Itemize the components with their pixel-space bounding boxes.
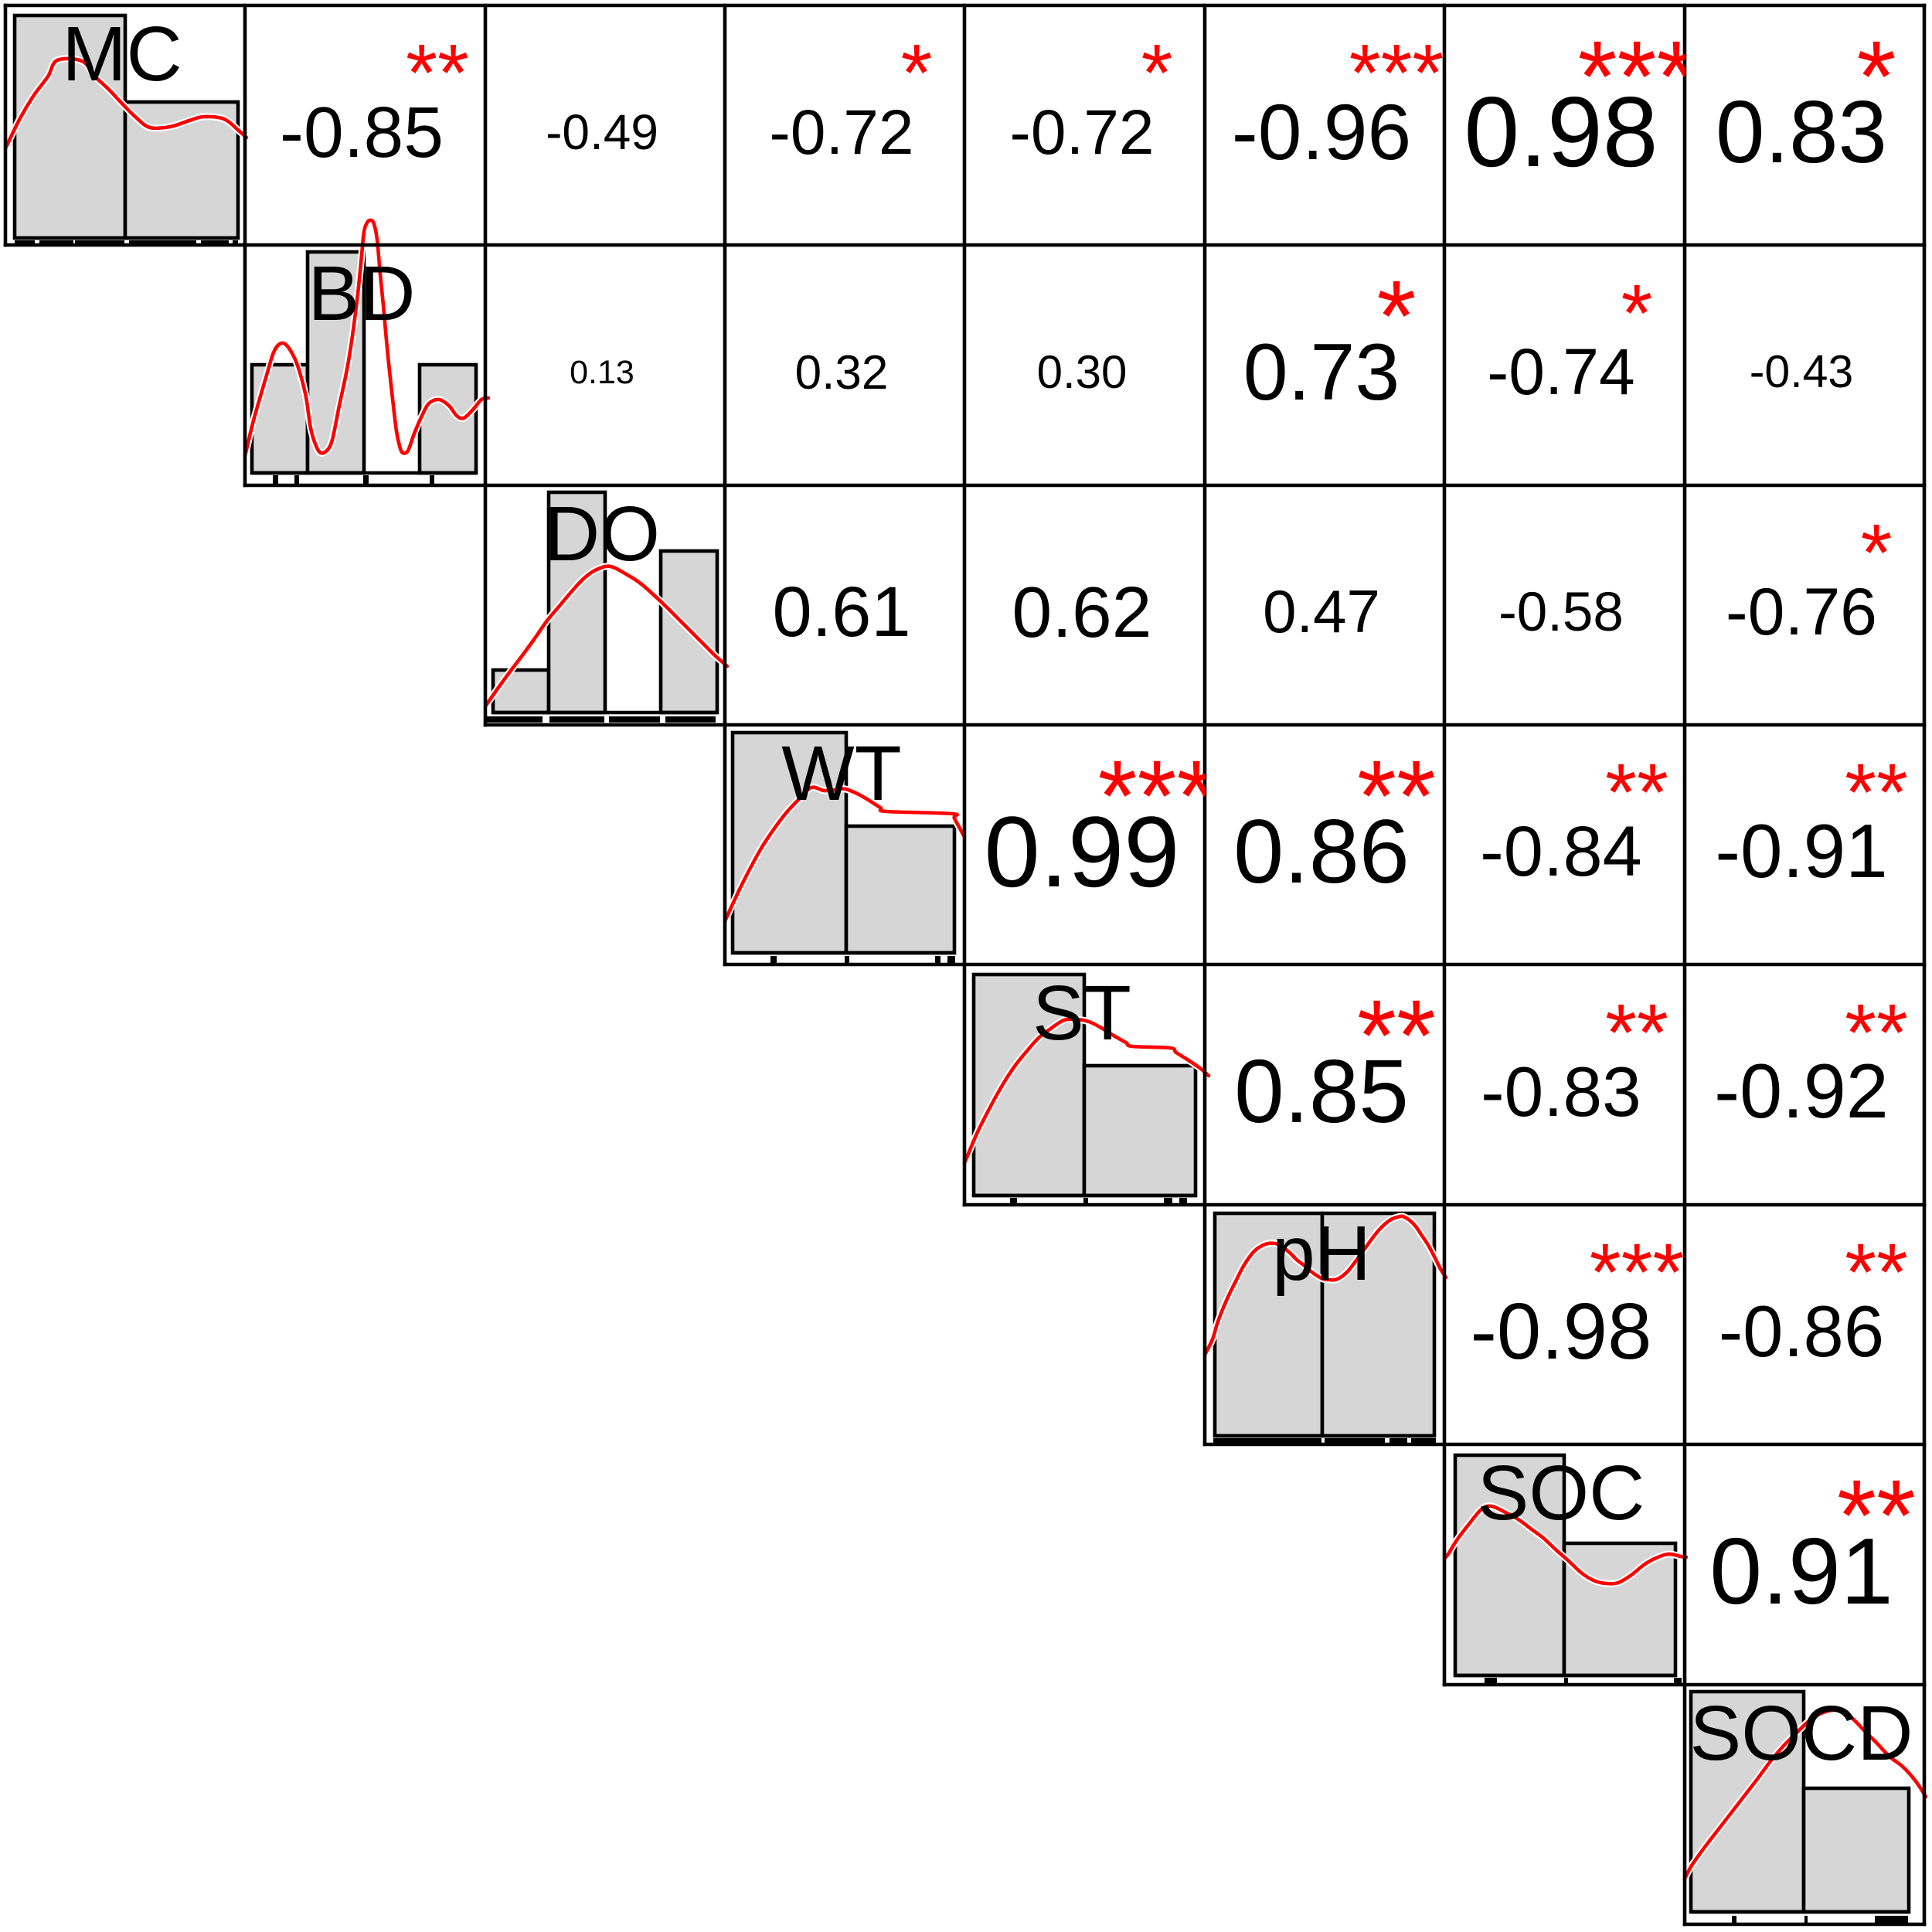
svg-text:**: **: [1605, 747, 1668, 838]
svg-text:0.13: 0.13: [570, 354, 634, 391]
svg-text:BD: BD: [308, 250, 416, 337]
svg-text:*: *: [1861, 508, 1893, 598]
svg-text:**: **: [1605, 988, 1668, 1078]
svg-text:-0.43: -0.43: [1750, 346, 1853, 397]
svg-text:SOCD: SOCD: [1690, 1690, 1913, 1777]
svg-text:0.61: 0.61: [772, 573, 910, 651]
svg-text:0.62: 0.62: [1012, 572, 1151, 652]
svg-text:**: **: [1357, 978, 1436, 1092]
svg-text:0.47: 0.47: [1263, 577, 1380, 645]
svg-text:***: ***: [1578, 19, 1696, 133]
svg-text:**: **: [1837, 1458, 1916, 1572]
svg-text:MC: MC: [62, 11, 182, 97]
svg-text:**: **: [1845, 747, 1908, 838]
svg-text:-0.58: -0.58: [1498, 582, 1624, 643]
svg-text:-0.76: -0.76: [1726, 575, 1877, 649]
svg-text:**: **: [1357, 739, 1436, 852]
svg-text:-0.49: -0.49: [546, 104, 658, 160]
svg-text:-0.74: -0.74: [1487, 335, 1634, 408]
svg-text:-0.72: -0.72: [1010, 97, 1155, 168]
svg-text:***: ***: [1590, 1227, 1685, 1318]
svg-text:0.30: 0.30: [1037, 346, 1128, 398]
svg-text:DO: DO: [544, 491, 660, 577]
svg-text:*: *: [1857, 19, 1896, 133]
svg-text:***: ***: [1349, 28, 1444, 118]
svg-text:*: *: [901, 28, 933, 118]
svg-text:0.32: 0.32: [795, 346, 889, 400]
svg-text:-0.72: -0.72: [770, 97, 914, 168]
svg-text:*: *: [1141, 28, 1173, 118]
svg-text:***: ***: [1098, 739, 1216, 852]
svg-text:*: *: [1621, 268, 1653, 359]
svg-text:**: **: [406, 28, 469, 118]
svg-text:**: **: [1845, 1227, 1908, 1318]
svg-text:SOC: SOC: [1478, 1450, 1645, 1536]
svg-text:WT: WT: [781, 730, 901, 817]
svg-text:ST: ST: [1032, 970, 1131, 1056]
svg-text:**: **: [1845, 988, 1908, 1078]
svg-text:pH: pH: [1272, 1210, 1371, 1297]
svg-text:*: *: [1377, 259, 1417, 372]
